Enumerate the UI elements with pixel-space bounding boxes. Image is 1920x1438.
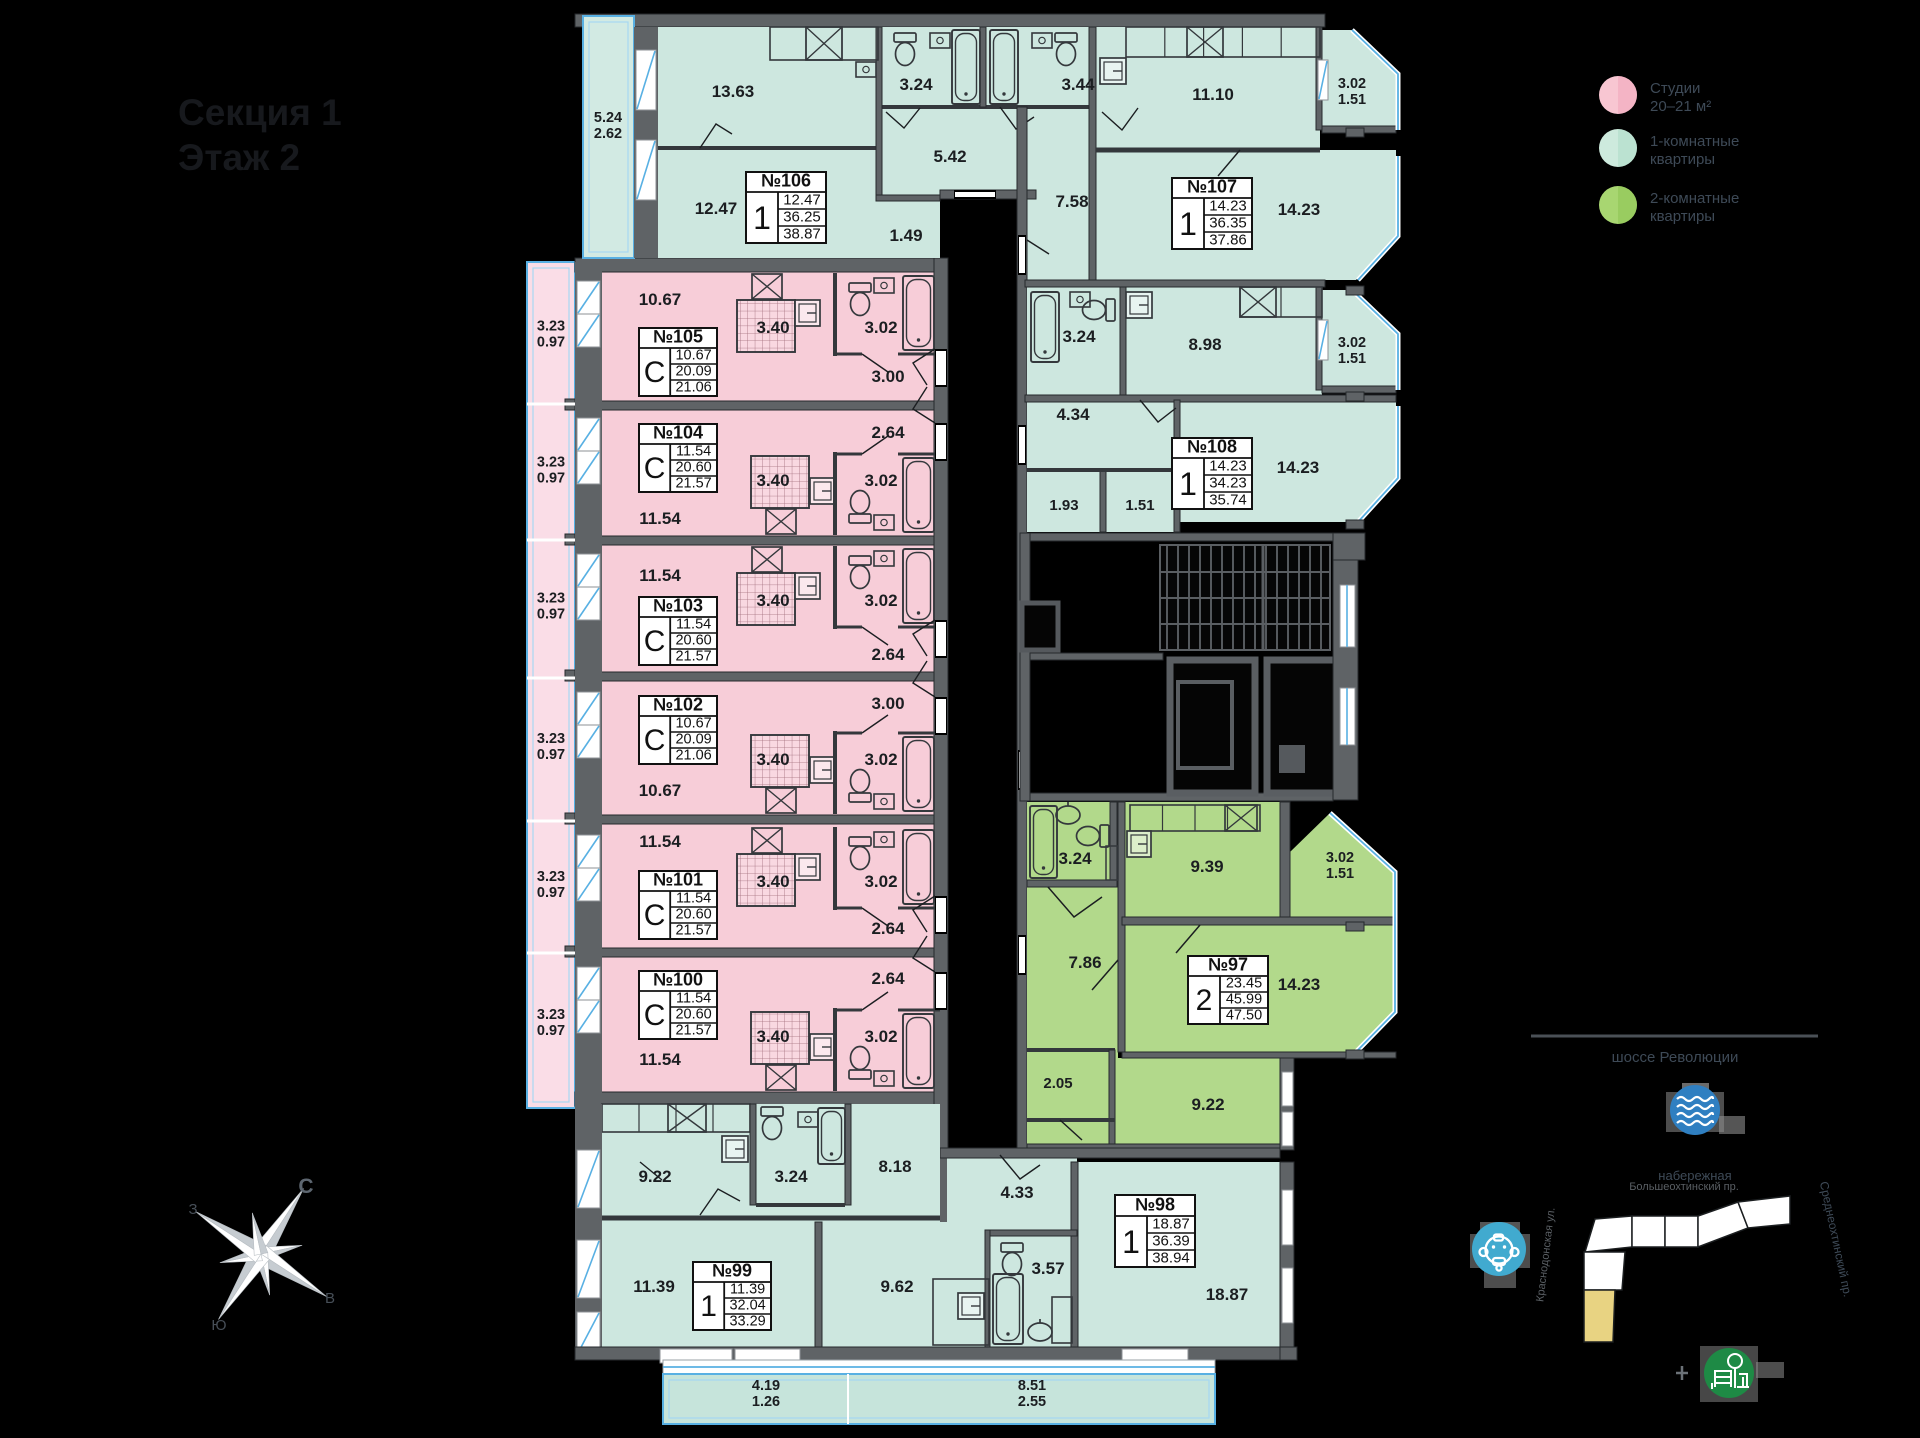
svg-text:1: 1 bbox=[700, 1290, 717, 1323]
svg-text:8.18: 8.18 bbox=[878, 1157, 911, 1176]
svg-text:21.06: 21.06 bbox=[675, 748, 711, 764]
svg-text:33.29: 33.29 bbox=[729, 1314, 765, 1330]
svg-text:10.67: 10.67 bbox=[675, 716, 711, 732]
svg-text:20.60: 20.60 bbox=[675, 907, 711, 923]
svg-text:11.39: 11.39 bbox=[730, 1282, 765, 1298]
svg-text:36.39: 36.39 bbox=[1152, 1233, 1190, 1250]
svg-text:14.23: 14.23 bbox=[1277, 458, 1320, 477]
svg-text:38.94: 38.94 bbox=[1152, 1250, 1190, 1267]
svg-text:8.51: 8.51 bbox=[1018, 1378, 1046, 1394]
svg-text:3.00: 3.00 bbox=[871, 367, 904, 386]
svg-text:3.02: 3.02 bbox=[864, 872, 897, 891]
svg-text:20–21 м²: 20–21 м² bbox=[1650, 98, 1711, 115]
svg-text:36.25: 36.25 bbox=[783, 209, 821, 226]
svg-text:35.74: 35.74 bbox=[1209, 492, 1247, 509]
svg-text:0.97: 0.97 bbox=[537, 607, 565, 623]
svg-text:47.50: 47.50 bbox=[1226, 1008, 1262, 1024]
svg-text:шоссе Революции: шоссе Революции bbox=[1612, 1049, 1739, 1066]
svg-text:11.54: 11.54 bbox=[676, 444, 711, 460]
svg-text:3.57: 3.57 bbox=[1031, 1259, 1064, 1278]
svg-text:34.23: 34.23 bbox=[1209, 475, 1247, 492]
svg-text:14.23: 14.23 bbox=[1278, 200, 1321, 219]
svg-text:4.19: 4.19 bbox=[752, 1378, 780, 1394]
svg-text:3.40: 3.40 bbox=[756, 318, 789, 337]
svg-text:45.99: 45.99 bbox=[1226, 992, 1262, 1008]
svg-text:№99: №99 bbox=[712, 1261, 752, 1281]
svg-text:3.02: 3.02 bbox=[1326, 850, 1354, 866]
svg-text:С: С bbox=[644, 452, 666, 485]
svg-text:3.40: 3.40 bbox=[756, 1027, 789, 1046]
svg-text:0.97: 0.97 bbox=[537, 885, 565, 901]
svg-text:2.05: 2.05 bbox=[1043, 1075, 1072, 1092]
svg-text:3.24: 3.24 bbox=[1058, 849, 1092, 868]
svg-text:38.87: 38.87 bbox=[783, 226, 821, 243]
svg-text:2.62: 2.62 bbox=[594, 126, 622, 142]
svg-text:37.86: 37.86 bbox=[1209, 232, 1247, 249]
svg-text:4.33: 4.33 bbox=[1000, 1183, 1033, 1202]
svg-text:1.51: 1.51 bbox=[1326, 866, 1354, 882]
svg-text:1.26: 1.26 bbox=[752, 1394, 780, 1410]
svg-text:20.60: 20.60 bbox=[675, 1007, 711, 1023]
svg-text:3.02: 3.02 bbox=[864, 750, 897, 769]
svg-text:36.35: 36.35 bbox=[1209, 215, 1247, 232]
svg-text:1: 1 bbox=[1179, 466, 1197, 502]
svg-text:1.51: 1.51 bbox=[1125, 497, 1154, 514]
svg-text:9.62: 9.62 bbox=[880, 1277, 913, 1296]
svg-text:3.02: 3.02 bbox=[864, 318, 897, 337]
svg-text:№101: №101 bbox=[653, 870, 703, 890]
svg-text:20.60: 20.60 bbox=[675, 460, 711, 476]
svg-text:3.40: 3.40 bbox=[756, 872, 789, 891]
svg-text:5.42: 5.42 bbox=[933, 147, 966, 166]
svg-text:Большеохтинский пр.: Большеохтинский пр. bbox=[1629, 1181, 1739, 1193]
svg-text:1: 1 bbox=[1179, 206, 1197, 242]
svg-text:3.23: 3.23 bbox=[537, 319, 565, 335]
svg-text:№107: №107 bbox=[1187, 177, 1237, 197]
svg-text:№100: №100 bbox=[653, 970, 703, 990]
svg-text:9.39: 9.39 bbox=[1190, 857, 1223, 876]
svg-text:С: С bbox=[644, 356, 666, 389]
svg-text:0.97: 0.97 bbox=[537, 747, 565, 763]
svg-text:11.54: 11.54 bbox=[676, 617, 711, 633]
svg-text:21.57: 21.57 bbox=[675, 923, 711, 939]
svg-text:12.47: 12.47 bbox=[783, 192, 821, 209]
svg-text:21.06: 21.06 bbox=[675, 380, 711, 396]
svg-text:9.22: 9.22 bbox=[1191, 1095, 1224, 1114]
svg-text:2.64: 2.64 bbox=[871, 645, 905, 664]
svg-text:21.57: 21.57 bbox=[675, 476, 711, 492]
svg-text:7.58: 7.58 bbox=[1055, 192, 1088, 211]
svg-text:11.54: 11.54 bbox=[639, 566, 681, 585]
svg-text:3.40: 3.40 bbox=[756, 591, 789, 610]
svg-text:3.23: 3.23 bbox=[537, 1007, 565, 1023]
svg-text:20.60: 20.60 bbox=[675, 633, 711, 649]
svg-text:14.23: 14.23 bbox=[1278, 975, 1321, 994]
svg-text:0.97: 0.97 bbox=[537, 335, 565, 351]
svg-text:1-комнатные: 1-комнатные bbox=[1650, 133, 1739, 150]
svg-text:Этаж 2: Этаж 2 bbox=[178, 137, 300, 178]
svg-text:№102: №102 bbox=[653, 695, 703, 715]
svg-text:3.44: 3.44 bbox=[1061, 75, 1095, 94]
svg-text:№103: №103 bbox=[653, 596, 703, 616]
svg-text:14.23: 14.23 bbox=[1209, 198, 1247, 215]
svg-text:3.23: 3.23 bbox=[537, 731, 565, 747]
svg-text:21.57: 21.57 bbox=[675, 1023, 711, 1039]
svg-text:12.47: 12.47 bbox=[695, 199, 738, 218]
svg-text:2: 2 bbox=[1196, 984, 1213, 1017]
svg-text:13.63: 13.63 bbox=[712, 82, 755, 101]
svg-text:В: В bbox=[325, 1290, 335, 1307]
svg-text:0.97: 0.97 bbox=[537, 471, 565, 487]
svg-text:2.64: 2.64 bbox=[871, 919, 905, 938]
svg-text:2.64: 2.64 bbox=[871, 969, 905, 988]
svg-text:С: С bbox=[644, 724, 666, 757]
svg-text:10.67: 10.67 bbox=[639, 781, 682, 800]
svg-text:32.04: 32.04 bbox=[729, 1298, 765, 1314]
svg-text:3.02: 3.02 bbox=[1338, 335, 1366, 351]
svg-text:№108: №108 bbox=[1187, 437, 1237, 457]
svg-text:3.24: 3.24 bbox=[899, 75, 933, 94]
svg-text:0.97: 0.97 bbox=[537, 1023, 565, 1039]
svg-text:№98: №98 bbox=[1135, 1195, 1175, 1215]
svg-text:№106: №106 bbox=[761, 171, 811, 191]
svg-text:11.39: 11.39 bbox=[633, 1277, 675, 1296]
svg-text:11.54: 11.54 bbox=[676, 891, 711, 907]
svg-text:11.54: 11.54 bbox=[639, 832, 681, 851]
svg-text:1.51: 1.51 bbox=[1338, 92, 1366, 108]
svg-text:№104: №104 bbox=[653, 423, 703, 443]
svg-text:1: 1 bbox=[1122, 1224, 1140, 1260]
svg-text:3.40: 3.40 bbox=[756, 471, 789, 490]
svg-text:2.55: 2.55 bbox=[1018, 1394, 1046, 1410]
svg-text:С: С bbox=[644, 899, 666, 932]
svg-text:квартиры: квартиры bbox=[1650, 151, 1715, 168]
svg-text:20.09: 20.09 bbox=[675, 364, 711, 380]
svg-text:С: С bbox=[644, 625, 666, 658]
svg-text:Ю: Ю bbox=[211, 1317, 226, 1334]
svg-text:3.23: 3.23 bbox=[537, 591, 565, 607]
svg-text:З: З bbox=[188, 1201, 197, 1218]
svg-text:3.24: 3.24 bbox=[1062, 327, 1096, 346]
svg-text:3.02: 3.02 bbox=[864, 591, 897, 610]
svg-text:11.54: 11.54 bbox=[639, 509, 681, 528]
svg-text:3.02: 3.02 bbox=[1338, 76, 1366, 92]
svg-text:11.10: 11.10 bbox=[1192, 85, 1234, 104]
svg-text:9.22: 9.22 bbox=[638, 1167, 671, 1186]
svg-text:23.45: 23.45 bbox=[1226, 976, 1262, 992]
svg-text:С: С bbox=[644, 999, 666, 1032]
svg-text:3.23: 3.23 bbox=[537, 455, 565, 471]
svg-text:3.40: 3.40 bbox=[756, 750, 789, 769]
svg-text:5.24: 5.24 bbox=[594, 110, 622, 126]
svg-text:№105: №105 bbox=[653, 327, 703, 347]
svg-text:21.57: 21.57 bbox=[675, 649, 711, 665]
svg-text:2-комнатные: 2-комнатные bbox=[1650, 190, 1739, 207]
svg-text:8.98: 8.98 bbox=[1188, 335, 1221, 354]
svg-text:Секция 1: Секция 1 bbox=[178, 92, 342, 133]
svg-text:3.00: 3.00 bbox=[871, 694, 904, 713]
svg-text:С: С bbox=[298, 1175, 313, 1198]
svg-text:10.67: 10.67 bbox=[639, 290, 682, 309]
svg-text:3.02: 3.02 bbox=[864, 471, 897, 490]
svg-text:1.93: 1.93 bbox=[1049, 497, 1078, 514]
svg-text:4.34: 4.34 bbox=[1056, 405, 1090, 424]
svg-text:11.54: 11.54 bbox=[676, 991, 711, 1007]
svg-text:11.54: 11.54 bbox=[639, 1050, 681, 1069]
svg-text:2.64: 2.64 bbox=[871, 423, 905, 442]
svg-text:Студии: Студии bbox=[1650, 80, 1700, 97]
svg-text:квартиры: квартиры bbox=[1650, 208, 1715, 225]
svg-text:1.51: 1.51 bbox=[1338, 351, 1366, 367]
svg-text:1.49: 1.49 bbox=[889, 226, 922, 245]
svg-text:14.23: 14.23 bbox=[1209, 458, 1247, 475]
svg-text:3.02: 3.02 bbox=[864, 1027, 897, 1046]
svg-text:7.86: 7.86 bbox=[1068, 953, 1101, 972]
svg-text:3.24: 3.24 bbox=[774, 1167, 808, 1186]
svg-text:1: 1 bbox=[753, 200, 771, 236]
svg-text:10.67: 10.67 bbox=[675, 348, 711, 364]
svg-text:3.23: 3.23 bbox=[537, 869, 565, 885]
svg-text:№97: №97 bbox=[1208, 955, 1248, 975]
svg-text:18.87: 18.87 bbox=[1152, 1216, 1190, 1233]
svg-text:18.87: 18.87 bbox=[1206, 1285, 1249, 1304]
svg-text:20.09: 20.09 bbox=[675, 732, 711, 748]
